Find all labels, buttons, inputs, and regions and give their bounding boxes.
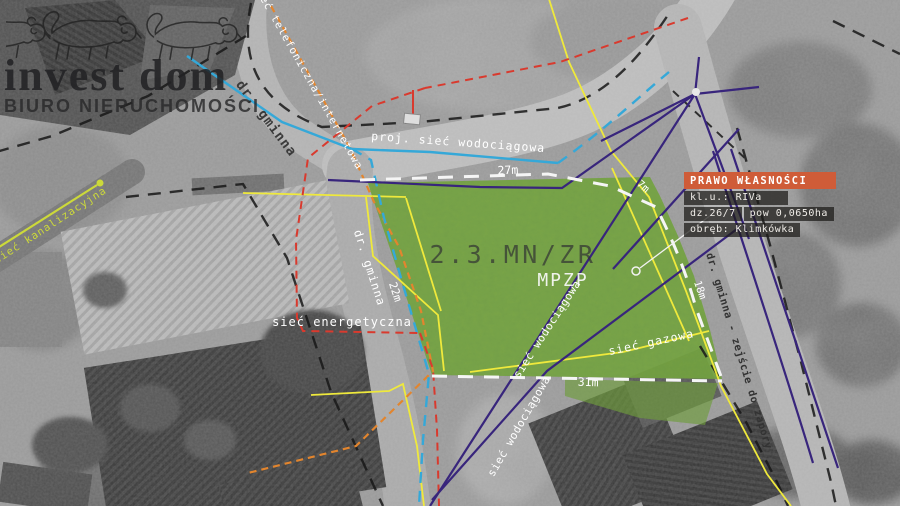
ownership-info-box: PRAWO WŁASNOŚCI kl.u.: RIVa dz.26/7pow 0… xyxy=(684,172,859,237)
transformer-box xyxy=(404,113,421,125)
energy-line-label: sieć energetyczna xyxy=(272,315,412,329)
annotated-aerial-map: sieć telefoniczna/internetowa dr. gminna… xyxy=(0,0,900,506)
district-value: obręb: Klimkówka xyxy=(684,223,800,237)
ownership-header: PRAWO WŁASNOŚCI xyxy=(684,172,836,189)
soil-class-row: kl.u.: RIVa xyxy=(684,191,859,205)
plot-number-value: dz.26/7 xyxy=(684,207,742,221)
area-value: pow 0,0650ha xyxy=(744,207,834,221)
soil-class-value: kl.u.: RIVa xyxy=(684,191,788,205)
dimension-bottom-label: 31m xyxy=(578,375,599,390)
listing-aerial-image: sieć telefoniczna/internetowa dr. gminna… xyxy=(0,0,900,506)
zoning-code-label: 2.3.MN/ZR xyxy=(430,240,597,269)
plot-row: dz.26/7pow 0,0650ha xyxy=(684,207,859,221)
district-row: obręb: Klimkówka xyxy=(684,223,859,237)
dimension-top-label: 27m xyxy=(497,163,518,178)
utility-pole-dot xyxy=(692,88,700,96)
